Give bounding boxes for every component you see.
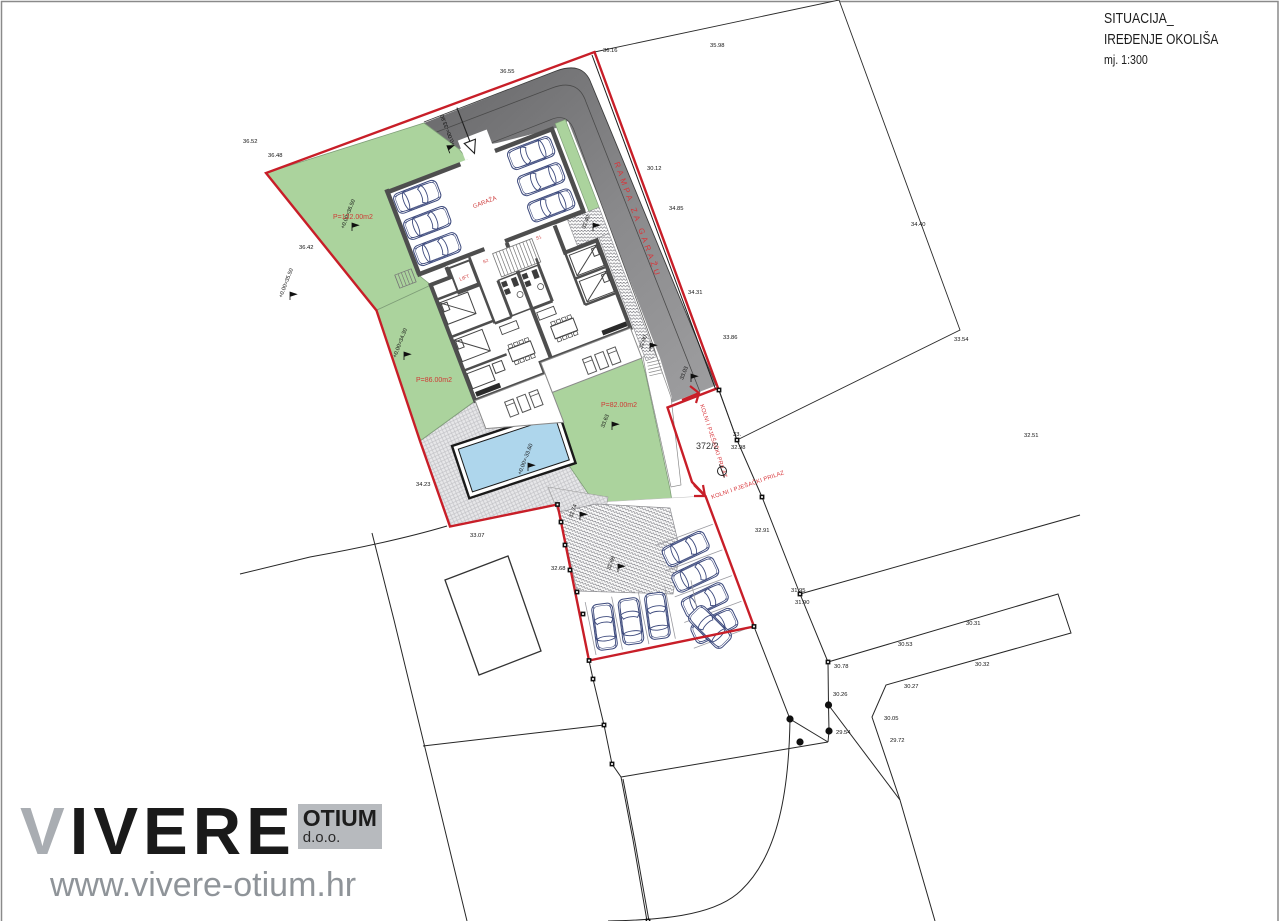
svg-text:P=82.00m2: P=82.00m2 bbox=[601, 402, 637, 409]
svg-text:32.91: 32.91 bbox=[755, 528, 770, 534]
svg-text:32.98: 32.98 bbox=[731, 445, 746, 451]
svg-text:29.54: 29.54 bbox=[836, 730, 851, 736]
svg-text:30.27: 30.27 bbox=[904, 684, 919, 690]
svg-text:34.23: 34.23 bbox=[416, 482, 431, 488]
svg-text:33.54: 33.54 bbox=[954, 337, 969, 343]
svg-text:29.72: 29.72 bbox=[890, 738, 905, 744]
svg-text:32.51: 32.51 bbox=[1024, 433, 1039, 439]
svg-text:33.86: 33.86 bbox=[723, 335, 738, 341]
svg-text:36.48: 36.48 bbox=[268, 153, 283, 159]
svg-text:34.85: 34.85 bbox=[669, 206, 684, 212]
svg-text:P=86.00m2: P=86.00m2 bbox=[416, 377, 452, 384]
svg-text:30.05: 30.05 bbox=[884, 716, 899, 722]
svg-text:36.16: 36.16 bbox=[603, 48, 618, 54]
svg-text:30.26: 30.26 bbox=[833, 692, 848, 698]
svg-text:32.68: 32.68 bbox=[551, 566, 566, 572]
svg-text:31.95: 31.95 bbox=[791, 588, 806, 594]
svg-text:33.: 33. bbox=[733, 432, 741, 438]
svg-text:30.31: 30.31 bbox=[966, 621, 981, 627]
svg-text:34.31: 34.31 bbox=[688, 290, 703, 296]
svg-text:36.55: 36.55 bbox=[500, 69, 515, 75]
svg-text:30.12: 30.12 bbox=[647, 166, 662, 172]
svg-text:30.53: 30.53 bbox=[898, 642, 913, 648]
svg-text:33.07: 33.07 bbox=[470, 533, 485, 539]
svg-text:P=122.00m2: P=122.00m2 bbox=[333, 214, 373, 221]
svg-text:372/2: 372/2 bbox=[696, 441, 719, 451]
svg-text:30.78: 30.78 bbox=[834, 664, 849, 670]
svg-text:36.52: 36.52 bbox=[243, 139, 258, 145]
svg-text:35.98: 35.98 bbox=[710, 43, 725, 49]
svg-text:34.40: 34.40 bbox=[911, 222, 926, 228]
svg-text:36.42: 36.42 bbox=[299, 245, 314, 251]
svg-text:31.90: 31.90 bbox=[795, 600, 810, 606]
svg-text:30.32: 30.32 bbox=[975, 662, 990, 668]
